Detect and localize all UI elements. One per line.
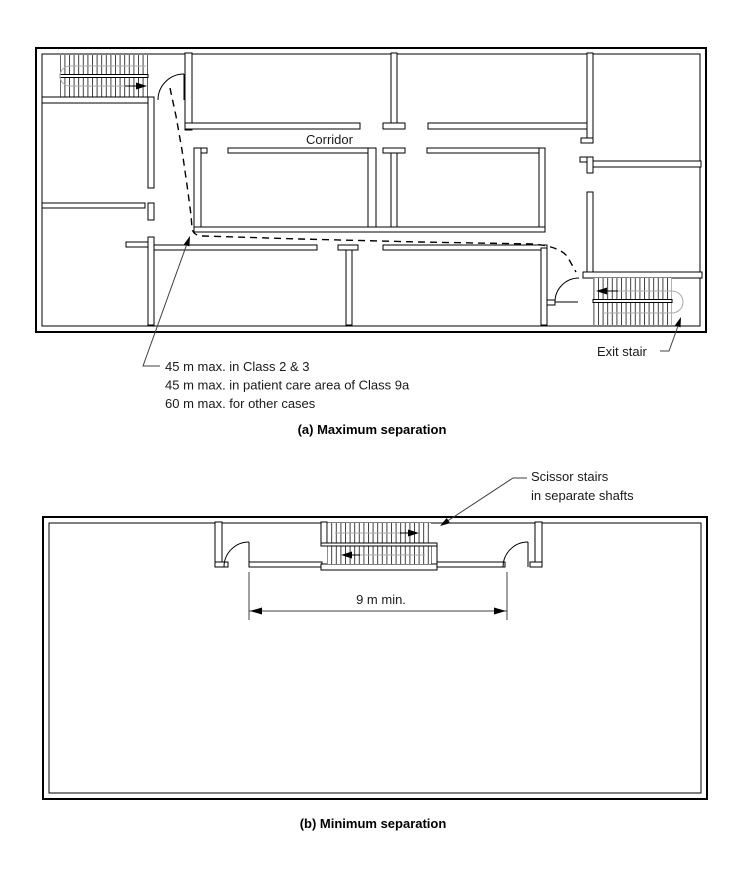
dimension-arrow-icon bbox=[250, 608, 262, 615]
wall-segment bbox=[391, 153, 397, 227]
wall-segment bbox=[541, 248, 547, 325]
wall-segment bbox=[215, 522, 222, 567]
stair-mid-landing-line bbox=[593, 300, 672, 303]
wall-segment bbox=[587, 53, 593, 138]
dimension-9m: 9 m min. bbox=[249, 572, 507, 620]
wall-segment bbox=[530, 562, 542, 567]
caption-panel-b: (b) Minimum separation bbox=[300, 816, 447, 831]
wall-segment bbox=[587, 157, 593, 173]
wall-segment bbox=[215, 562, 228, 567]
door-swing-arc bbox=[555, 278, 579, 302]
leader-line bbox=[446, 478, 527, 522]
wall-segment bbox=[154, 245, 317, 250]
scissor-label-line-2: in separate shafts bbox=[531, 488, 634, 503]
wall-segment bbox=[228, 148, 368, 153]
leader-scissor-stairs bbox=[440, 478, 527, 526]
stair-mid-landing-line bbox=[321, 543, 437, 546]
wall-segment bbox=[346, 250, 352, 325]
wall-segment bbox=[185, 53, 192, 130]
leader-arrow-icon bbox=[440, 518, 450, 526]
wall-segment bbox=[249, 562, 322, 567]
leader-line bbox=[660, 326, 678, 351]
wall-segment bbox=[194, 227, 545, 232]
dimension-label: 9 m min. bbox=[356, 592, 406, 607]
door-swing-arc bbox=[158, 74, 184, 100]
wall-segment bbox=[126, 242, 148, 247]
wall-segment bbox=[148, 97, 154, 188]
wall-segment bbox=[431, 562, 505, 567]
wall-segment bbox=[539, 148, 545, 232]
wall-segment bbox=[194, 148, 201, 232]
door-swing-arc bbox=[503, 542, 528, 567]
annotation-line-3: 60 m max. for other cases bbox=[165, 396, 316, 411]
scissor-stairs bbox=[321, 523, 437, 564]
wall-segment bbox=[593, 161, 701, 167]
plan-a: Corridor 45 m max. in Class 2 & 3 45 m m… bbox=[36, 48, 706, 437]
stair-mid-landing-line bbox=[60, 75, 148, 78]
wall-segment bbox=[583, 272, 702, 278]
diagram-canvas: Corridor 45 m max. in Class 2 & 3 45 m m… bbox=[0, 0, 750, 869]
dimension-arrow-icon bbox=[494, 608, 506, 615]
plan-b: 9 m min. Scissor stairs in separate shaf… bbox=[43, 469, 707, 831]
wall-segment bbox=[368, 148, 376, 232]
wall-segment bbox=[321, 564, 437, 570]
egress-diagram: Corridor 45 m max. in Class 2 & 3 45 m m… bbox=[0, 0, 750, 869]
scissor-label-line-1: Scissor stairs bbox=[531, 469, 609, 484]
wall-segment bbox=[338, 245, 358, 250]
wall-segment bbox=[427, 148, 545, 153]
stair-walkline-uturn bbox=[672, 291, 683, 313]
caption-panel-a: (a) Maximum separation bbox=[298, 422, 447, 437]
annotation-line-1: 45 m max. in Class 2 & 3 bbox=[165, 359, 310, 374]
wall-segment bbox=[383, 148, 405, 153]
wall-segment bbox=[587, 192, 593, 277]
stair-top-left bbox=[60, 55, 148, 97]
wall-segment bbox=[42, 97, 150, 103]
wall-segment bbox=[547, 300, 555, 305]
wall-segment bbox=[581, 138, 593, 143]
exit-stair-label: Exit stair bbox=[597, 344, 648, 359]
wall-segment bbox=[148, 237, 154, 325]
annotation-line-2: 45 m max. in patient care area of Class … bbox=[165, 378, 410, 393]
wall-segment bbox=[535, 522, 542, 567]
corridor-label: Corridor bbox=[306, 132, 354, 147]
wall-segment bbox=[383, 245, 547, 250]
wall-segment bbox=[185, 123, 360, 129]
stair-exit-bottom-right bbox=[593, 278, 683, 325]
wall-segment bbox=[391, 53, 397, 123]
wall-segment bbox=[321, 522, 327, 544]
wall-segment bbox=[428, 123, 590, 129]
wall-segment bbox=[148, 203, 154, 220]
wall-segment bbox=[42, 203, 145, 208]
wall-segment bbox=[383, 123, 405, 129]
